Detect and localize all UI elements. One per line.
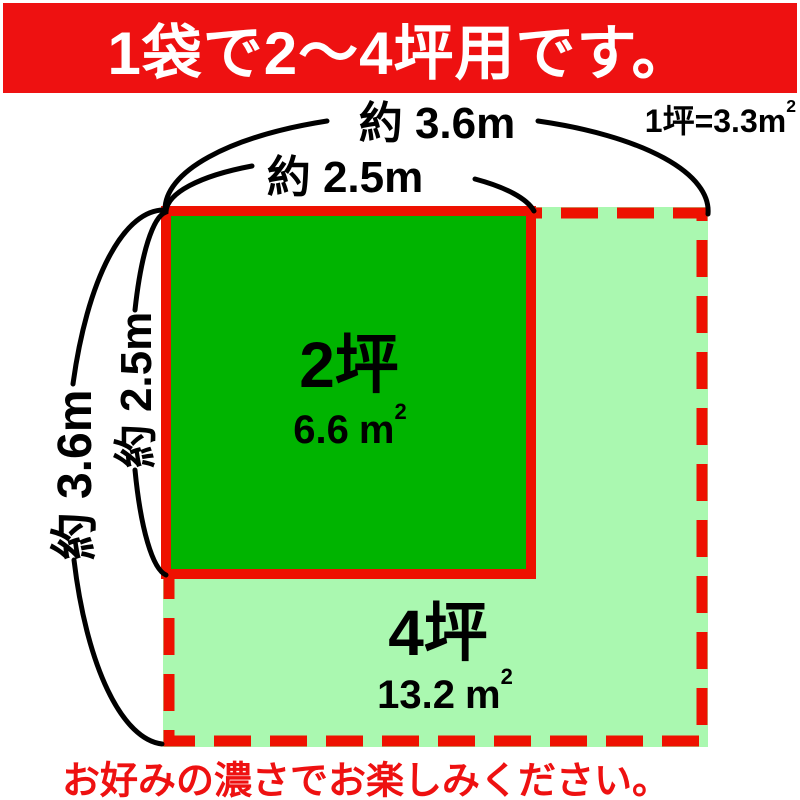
outer-area-name: 4坪 — [388, 601, 488, 665]
inner-area-value-unit: m — [359, 408, 395, 452]
outer-area-value: 13.2m2 — [377, 675, 513, 715]
outer-area-value-superscript: 2 — [501, 664, 513, 689]
inner-width-measurement-label: 約 2.5m — [267, 156, 424, 200]
inner-height-measurement-label: 約 2.5m — [115, 312, 159, 469]
inner-area-value-superscript: 2 — [394, 399, 406, 424]
brace-outer-topright-arc — [538, 121, 708, 214]
outer-height-measurement-label: 約 3.6m — [52, 390, 100, 561]
footer-note: お好みの濃さでお楽しみください。 — [62, 750, 670, 800]
outer-area-value-unit: m — [465, 673, 501, 717]
inner-area-name: 2坪 — [299, 333, 399, 397]
outer-width-measurement-label: 約 3.6m — [359, 102, 516, 146]
inner-area-value: 6.6m2 — [293, 410, 406, 450]
brace-outer-bottomleft-arc — [74, 560, 162, 744]
outer-area-value-number: 13.2 — [377, 673, 455, 717]
inner-area-value-number: 6.6 — [293, 408, 349, 452]
infographic-stage: 1袋で2〜4坪用です。 1坪=3.3m2 約 3.6m 約 2.5m 約 2.5… — [0, 0, 800, 800]
